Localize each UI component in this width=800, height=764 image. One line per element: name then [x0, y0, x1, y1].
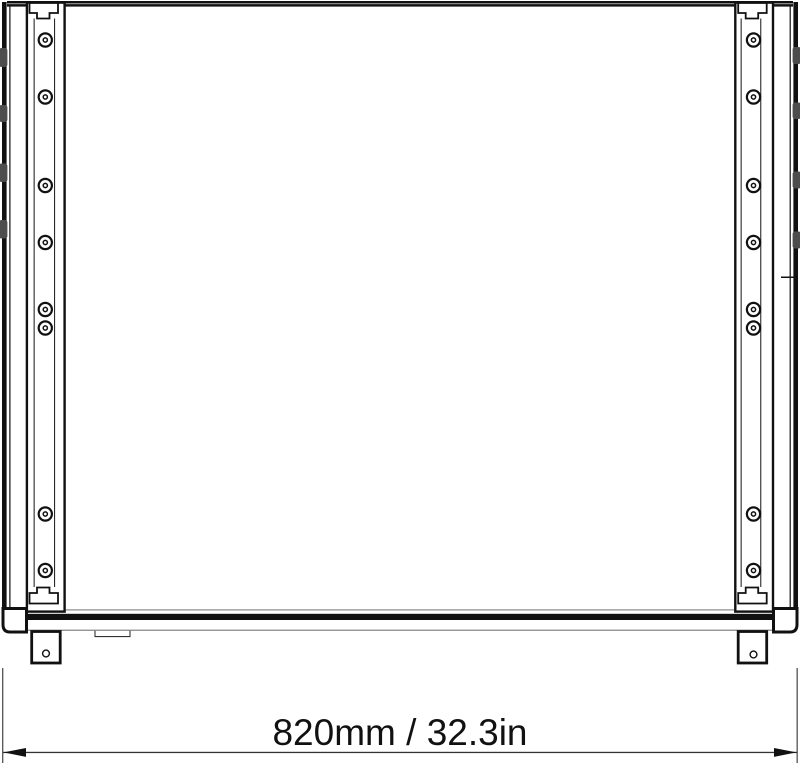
- rail-screw: [747, 303, 760, 316]
- rail-screw: [39, 321, 52, 334]
- rail-screw: [747, 90, 760, 103]
- rail-screw: [39, 236, 52, 249]
- left-side-wall: [2, 2, 11, 612]
- extension-line-right: [797, 668, 798, 763]
- rail-screw: [747, 507, 760, 520]
- rail-screw: [39, 179, 52, 192]
- rail-screw: [747, 321, 760, 334]
- rail-screw: [747, 179, 760, 192]
- bottom-right-corner-block: [774, 609, 798, 633]
- side-tab: [0, 220, 7, 239]
- rail-screw: [39, 33, 52, 46]
- side-tab: [793, 47, 800, 64]
- side-tab: [793, 172, 800, 189]
- right-side-wall: [781, 2, 798, 612]
- rail-channel-line: [34, 19, 35, 588]
- rail-screw: [39, 90, 52, 103]
- rail-channel-line: [54, 19, 55, 588]
- dimension-arrow-right-icon: [774, 748, 797, 757]
- top-edge: [7, 1, 793, 7]
- rail-screw: [747, 33, 760, 46]
- left-rack-rail: [27, 3, 65, 612]
- left-foot: [32, 632, 61, 664]
- right-rack-rail: [735, 3, 773, 612]
- bottom-edge: [3, 609, 797, 637]
- rail-channel-line: [741, 19, 742, 588]
- rail-screw: [39, 303, 52, 316]
- cabinet-front-drawing: 820mm / 32.3in: [0, 0, 800, 764]
- rail-screw: [747, 236, 760, 249]
- foot-hole: [43, 650, 50, 657]
- bottom-slot: [95, 631, 130, 637]
- right-foot: [738, 632, 767, 664]
- rail-screw: [39, 507, 52, 520]
- rail-screw: [39, 564, 52, 577]
- foot-hole: [750, 651, 757, 658]
- side-tab: [793, 232, 800, 249]
- width-dimension: 820mm / 32.3in: [2, 668, 797, 763]
- side-tab: [793, 103, 800, 120]
- side-tab: [0, 105, 7, 122]
- side-tab: [0, 164, 7, 183]
- side-tab: [0, 48, 7, 67]
- right-wall-seam: [781, 277, 795, 279]
- rail-screw: [747, 564, 760, 577]
- technical-drawing-canvas: 820mm / 32.3in: [0, 0, 800, 764]
- extension-line-left: [2, 668, 3, 763]
- bottom-left-corner-block: [3, 609, 27, 633]
- dimension-arrow-left-icon: [4, 748, 27, 757]
- dimension-label: 820mm / 32.3in: [272, 712, 527, 753]
- rail-channel-line: [760, 19, 761, 588]
